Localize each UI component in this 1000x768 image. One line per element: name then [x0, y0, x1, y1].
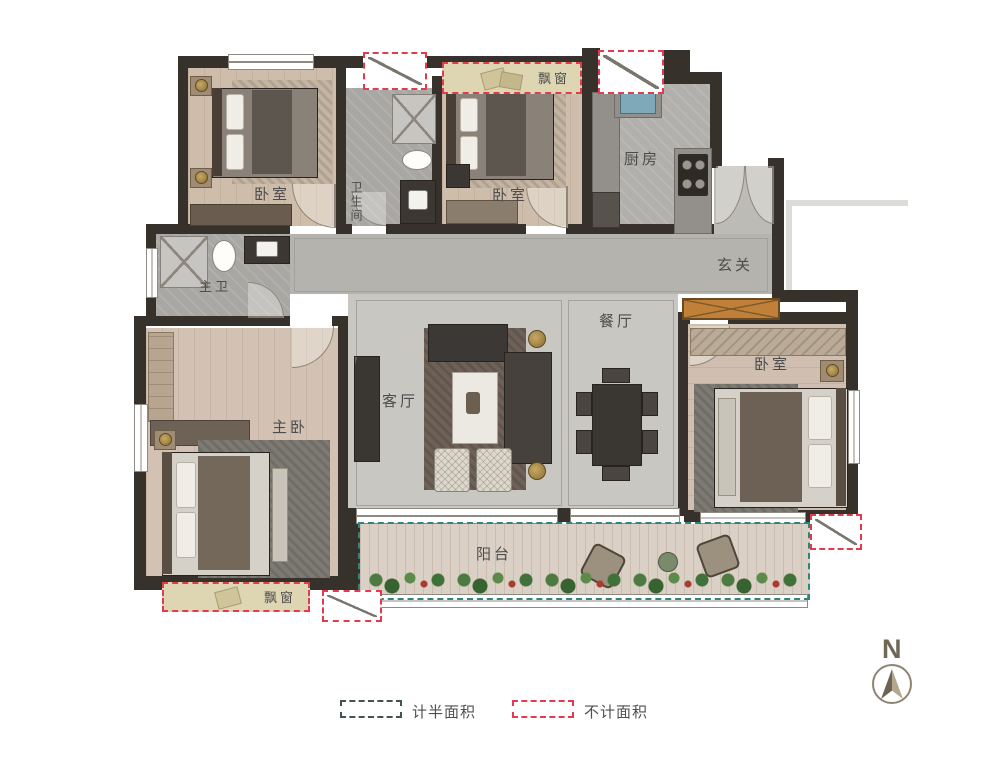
ac-unit-icon [815, 519, 857, 545]
window [848, 390, 860, 464]
dining-chair [576, 430, 592, 454]
pillow [226, 134, 244, 170]
sofa-chaise [504, 352, 552, 464]
legend-half-area-label: 计半面积 [412, 701, 476, 722]
bed-bench [272, 468, 288, 562]
ac-unit-box [810, 514, 862, 550]
exterior-line-v [786, 200, 792, 292]
bathroom-top-label: 卫生间 [350, 172, 362, 232]
window [228, 54, 314, 70]
wardrobe [148, 332, 174, 422]
exterior-line-h [786, 200, 908, 206]
wall [772, 230, 784, 296]
foyer-cabinet [682, 298, 780, 320]
ac-unit-icon [368, 57, 422, 85]
dining-room-label: 餐厅 [585, 314, 649, 329]
armchair [476, 448, 512, 492]
side-table [446, 164, 470, 188]
toilet [212, 240, 236, 272]
compass-icon [872, 664, 912, 704]
wall [678, 324, 688, 516]
bed-blanket [740, 392, 802, 502]
pillow [808, 396, 832, 440]
sink [256, 241, 278, 257]
dining-chair [576, 392, 592, 416]
lamp [159, 433, 172, 446]
ac-unit-box [363, 52, 427, 90]
closet [690, 328, 846, 356]
pillow [176, 512, 196, 558]
ac-unit-icon [603, 55, 659, 89]
stove [678, 154, 708, 196]
window [134, 404, 148, 472]
ac-unit-icon [327, 595, 377, 617]
kitchen-sink [620, 92, 656, 114]
foyer-label: 玄关 [703, 258, 767, 273]
wall [178, 56, 188, 232]
bed-blanket [252, 90, 292, 174]
compass-north-label: N [882, 634, 902, 665]
legend-excluded-area-label: 不计面积 [584, 701, 648, 722]
bay-window-top-box: 飘窗 [442, 62, 582, 94]
dining-chair [642, 392, 658, 416]
bedroom-right-label: 卧室 [740, 357, 804, 372]
wall [178, 56, 230, 68]
master-bedroom-label: 主卧 [258, 420, 322, 435]
pillow [460, 98, 478, 132]
dining-chair [602, 368, 630, 383]
lamp [195, 79, 208, 92]
wall [566, 224, 586, 234]
bed-bench [718, 398, 736, 496]
lamp [826, 364, 839, 377]
bay-window-top-label: 飘窗 [530, 73, 578, 86]
master-bathroom-label: 主卫 [185, 281, 245, 294]
legend-excluded-area-swatch [512, 700, 574, 718]
bay-window-bottom-box: 飘窗 [162, 582, 310, 612]
legend-half-area-swatch [340, 700, 402, 718]
bed-blanket [198, 456, 250, 570]
sofa [428, 324, 508, 362]
bed-headboard [212, 88, 222, 176]
sink [408, 190, 428, 210]
window [146, 248, 158, 298]
bedroom-top-middle-label: 卧室 [478, 188, 542, 203]
dining-table [592, 384, 642, 466]
balcony-label: 阳台 [462, 547, 526, 562]
wall [436, 224, 526, 234]
toilet [402, 150, 432, 170]
shower [392, 94, 436, 144]
wall [664, 50, 690, 76]
armchair [434, 448, 470, 492]
bay-cushion [214, 586, 242, 610]
door-leaf [334, 184, 336, 228]
dining-chair [602, 466, 630, 481]
tv-console [354, 356, 380, 462]
wall [386, 224, 436, 234]
kitchen-label: 厨房 [610, 152, 674, 167]
dresser [190, 204, 292, 226]
bedroom-top-left-label: 卧室 [240, 187, 304, 202]
bed-blanket [486, 94, 526, 176]
pillow [176, 462, 196, 508]
pillow [226, 94, 244, 130]
ac-unit-box [598, 50, 664, 94]
table-decor [466, 392, 480, 414]
bay-window-bottom-label: 飘窗 [256, 592, 304, 605]
foyer-outline [294, 238, 768, 292]
fridge [592, 192, 620, 228]
floor-plan-canvas: 飘窗 飘窗 卧室 卫生间 卧室 厨房 玄关 主卫 主卧 客厅 餐厅 卧室 阳台 … [0, 0, 1000, 768]
wall [582, 76, 592, 232]
pillow [808, 444, 832, 488]
plants [366, 568, 804, 594]
bay-cushion [499, 71, 523, 91]
floor-lamp [528, 462, 546, 480]
wall [846, 290, 858, 394]
wall [558, 508, 570, 522]
wall [336, 56, 346, 232]
compass-needle [881, 669, 903, 699]
bed-headboard [162, 452, 172, 574]
door-leaf [566, 186, 568, 228]
ac-unit-box [322, 590, 382, 622]
dining-chair [642, 430, 658, 454]
bed-headboard [836, 388, 846, 506]
lamp [195, 171, 208, 184]
living-room-label: 客厅 [368, 394, 432, 409]
floor-lamp [528, 330, 546, 348]
